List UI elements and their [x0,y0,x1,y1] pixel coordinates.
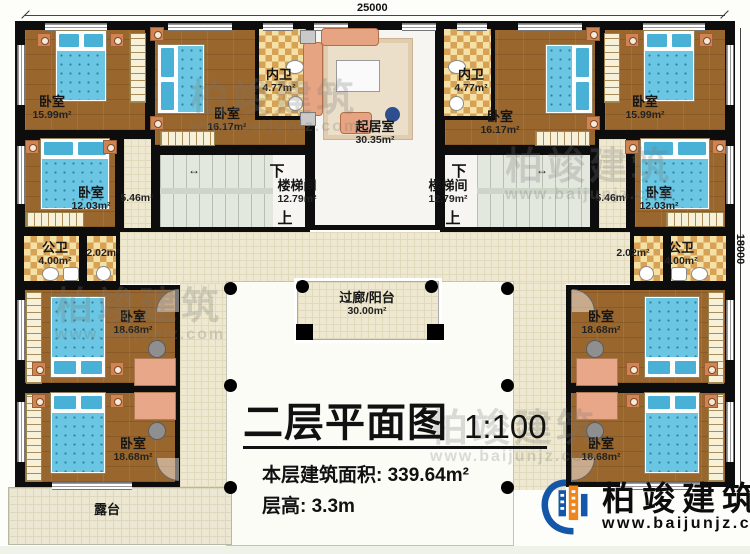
label-stairwell-right: 楼梯间 12.79m² [428,179,467,205]
stair-arrow-icon: ↔ [536,163,548,177]
bed [644,296,700,378]
window [17,146,25,204]
window [726,146,734,204]
window [168,23,232,31]
dimension-line-top [25,15,725,16]
toilet-icon [691,267,708,281]
label-living: 起居室 30.35m² [355,120,394,146]
toilet-icon [42,267,59,281]
nightstand [704,362,718,376]
wardrobe-icon [604,33,620,103]
nightstand [626,362,640,376]
window [726,402,734,462]
basin-icon [96,266,111,281]
floor-area-value: 339.64m² [388,465,469,486]
logo-url: www.baijunjz.com [602,515,750,533]
dimension-top-label: 25000 [357,2,388,14]
column-dot [425,280,438,293]
column-dot [224,379,237,392]
wardrobe-icon [666,212,724,227]
label-lobby-left: 2.02m² [86,248,119,260]
label-bath-right: 公卫 4.00m² [664,241,697,267]
window [726,45,734,105]
nightstand [110,33,124,47]
logo-name: 柏竣建筑 [602,482,750,515]
floor-area-label: 本层建筑面积: [262,465,382,486]
label-stairwell-left: 楼梯间 12.79m² [277,179,316,205]
stair-landing [477,188,590,194]
nightstand [704,394,718,408]
label-bedroom-right-2: 卧室 12.03m² [639,186,678,212]
bed [55,30,107,102]
window [457,23,487,31]
nightstand [32,394,46,408]
label-hall-right: 5.46m² [595,193,628,205]
label-lobby-right: 2.02m² [616,248,649,260]
column-dot [296,280,309,293]
label-bedroom-top-left: 卧室 15.99m² [32,95,71,121]
stair-arrow-icon: ↔ [188,163,200,177]
floor-plan: 25000 18000 ↔ ↔ [0,0,750,554]
sink-icon [288,96,303,111]
company-logo: 柏竣建筑 www.baijunjz.com [538,477,750,537]
basin-icon [639,266,654,281]
desk [576,392,618,420]
bed [644,392,700,474]
stair-up-label: 上 [445,207,460,228]
label-bedroom-bottom-right-2: 卧室 18.68m² [581,437,620,463]
wardrobe-icon [535,131,590,146]
column-dot [224,481,237,494]
bed [50,392,106,474]
column-dot [501,481,514,494]
wardrobe-icon [130,33,146,103]
label-bath-left: 公卫 4.00m² [38,241,71,267]
window [17,402,25,462]
nightstand [586,27,600,41]
chair [586,340,604,358]
coffee-table [336,60,380,92]
nightstand [110,362,124,376]
column-dot [501,282,514,295]
label-bedroom-bottom-left-1: 卧室 18.68m² [113,310,152,336]
chair [148,340,166,358]
nightstand [110,394,124,408]
cabinet [300,112,316,126]
label-bedroom-bottom-right-1: 卧室 18.68m² [581,310,620,336]
room-hall-left [120,135,155,232]
sofa-icon [321,28,379,46]
nightstand [626,394,640,408]
floor-height-value: 3.3m [312,496,355,517]
bed [50,296,106,378]
label-ensuite-left: 内卫 4.77m² [262,68,295,94]
column-square [427,324,444,340]
window [52,482,132,490]
stair-up-label: 上 [277,207,292,228]
bed [157,44,205,114]
cabinet [300,30,316,44]
corridor-right [512,283,566,490]
column-dot [501,379,514,392]
desk [134,392,176,420]
desk [134,358,176,386]
label-bedroom-mid-right: 卧室 16.17m² [480,110,519,136]
sink-icon [449,96,464,111]
window [518,23,582,31]
plan-title-row: 二层平面图 1:100 [243,403,547,449]
label-bedroom-top-right: 卧室 15.99m² [625,95,664,121]
floor-height-label: 层高: [262,496,306,517]
window [263,23,293,31]
nightstand [150,116,164,130]
window [17,45,25,105]
window [17,300,25,360]
nightstand [586,116,600,130]
label-ensuite-right: 内卫 4.77m² [454,68,487,94]
nightstand [25,140,39,154]
column-dot [224,282,237,295]
bed [643,30,695,102]
bottom-margin [0,546,750,554]
nightstand [37,33,51,47]
stair-landing [160,188,273,194]
sofa-icon [303,42,323,116]
window [402,23,436,31]
nightstand [699,33,713,47]
wardrobe-icon [26,212,84,227]
corridor-band [120,232,630,284]
window [726,300,734,360]
nightstand [103,140,117,154]
label-bedroom-bottom-left-2: 卧室 18.68m² [113,437,152,463]
desk [576,358,618,386]
dimension-right-label: 18000 [734,221,746,277]
floor-height-line: 层高: 3.3m [262,491,355,518]
plan-scale: 1:100 [464,410,547,443]
label-bedroom-left-2: 卧室 12.03m² [71,186,110,212]
label-hall-left: 5.46m² [120,193,153,205]
floor-area-line: 本层建筑面积: 339.64m² [262,460,469,487]
nightstand [712,140,726,154]
column-square [296,324,313,340]
label-balcony: 过廊/阳台 30.00m² [339,291,395,317]
label-terrace: 露台 [94,503,120,518]
nightstand [625,140,639,154]
page-title: 二层平面图 [243,403,448,443]
bed [545,44,593,114]
nightstand [150,27,164,41]
nightstand [625,33,639,47]
wall-outer-top [15,21,735,25]
label-bedroom-mid-left: 卧室 16.17m² [207,107,246,133]
nightstand [32,362,46,376]
sink-icon [671,267,687,281]
sink-icon [63,267,79,281]
logo-mark-icon [538,477,594,537]
